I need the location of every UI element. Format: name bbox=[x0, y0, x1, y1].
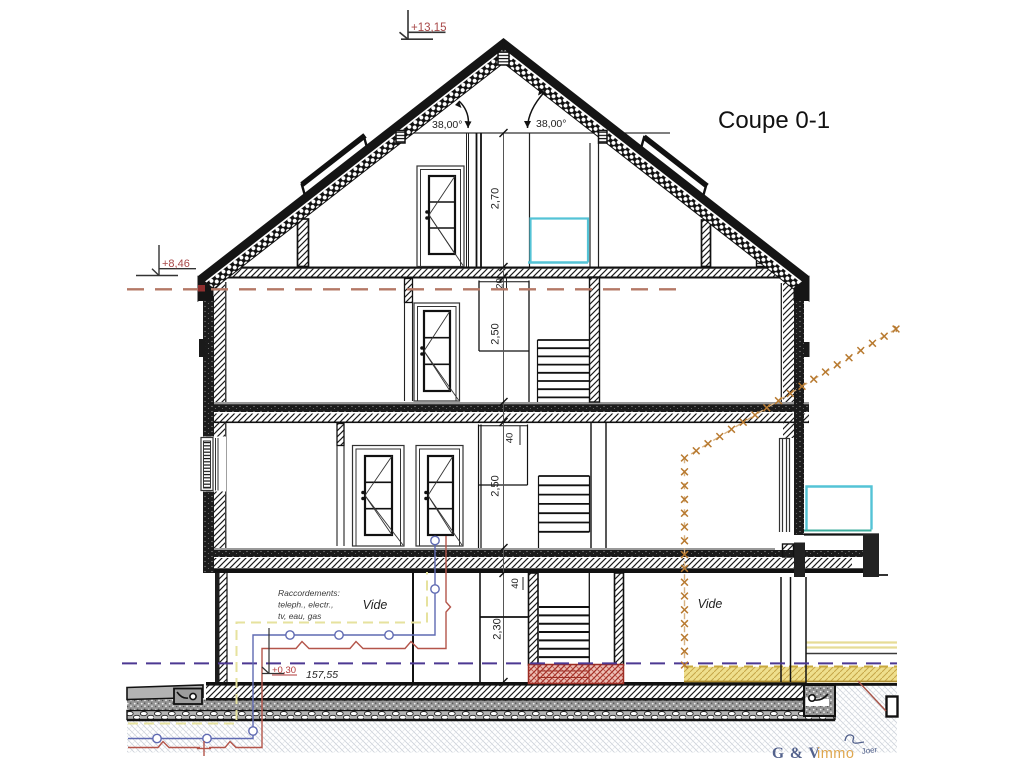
svg-text:2,50: 2,50 bbox=[490, 323, 502, 344]
svg-text:20: 20 bbox=[495, 278, 506, 289]
svg-text:157,55: 157,55 bbox=[306, 669, 338, 681]
svg-text:Vide: Vide bbox=[698, 597, 723, 611]
svg-text:+8,46: +8,46 bbox=[162, 258, 190, 270]
svg-text:G & V: G & V bbox=[772, 745, 821, 762]
svg-text:Vide: Vide bbox=[363, 598, 388, 612]
svg-text:Raccordements:: Raccordements: bbox=[278, 588, 341, 598]
svg-text:immo: immo bbox=[817, 746, 854, 762]
svg-text:40: 40 bbox=[510, 578, 521, 589]
svg-text:tv, eau, gas: tv, eau, gas bbox=[278, 611, 322, 621]
svg-text:2,30: 2,30 bbox=[492, 618, 504, 639]
svg-text:+0,30: +0,30 bbox=[272, 665, 296, 676]
svg-text:40: 40 bbox=[505, 433, 516, 444]
svg-text:2,50: 2,50 bbox=[490, 475, 502, 496]
svg-text:Coupe 0-1: Coupe 0-1 bbox=[718, 107, 830, 134]
svg-text:38,00°: 38,00° bbox=[536, 118, 566, 130]
svg-text:38,00°: 38,00° bbox=[432, 119, 462, 131]
svg-text:Joer: Joer bbox=[861, 745, 878, 756]
svg-text:2,70: 2,70 bbox=[490, 188, 502, 209]
svg-text:teleph., electr.,: teleph., electr., bbox=[278, 600, 333, 610]
svg-text:+13,15: +13,15 bbox=[411, 22, 447, 34]
